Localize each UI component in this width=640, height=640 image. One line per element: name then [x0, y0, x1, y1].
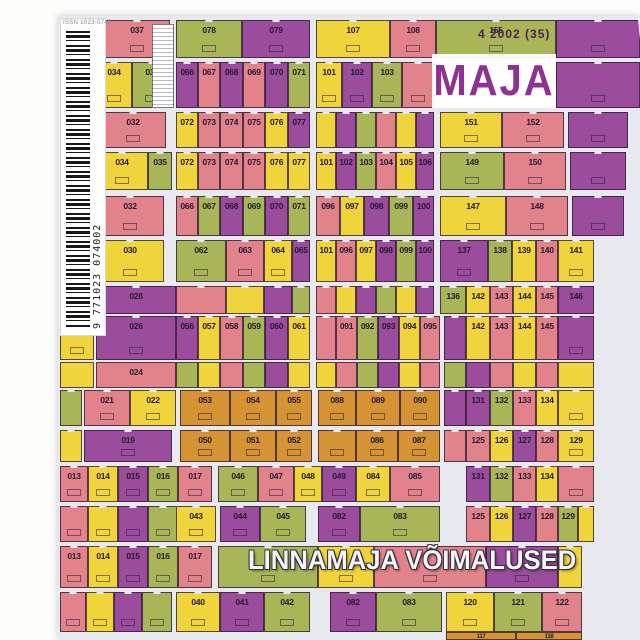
plan-cell: 118 [516, 632, 582, 640]
unit-number: 053 [198, 396, 211, 425]
plan-cell [336, 286, 356, 314]
unit-number: 085 [408, 472, 421, 501]
plan-cell: 103 [356, 152, 376, 190]
plan-cell: 076 [265, 152, 288, 190]
unit-number: 120 [463, 598, 476, 631]
unit-number: 087 [412, 436, 425, 461]
unit-number: 067 [202, 68, 215, 107]
plan-cell: 140 [536, 240, 558, 282]
plan-cell: 013 [60, 466, 88, 502]
magazine-cover: 0370780791071081550340350660670680690700… [0, 0, 640, 640]
plan-cell [220, 362, 243, 388]
unit-number: 152 [526, 118, 539, 147]
plan-cell: 098 [376, 240, 396, 282]
plan-cell: 062 [176, 240, 226, 282]
unit-number: 149 [465, 158, 478, 189]
plan-cell: 090 [400, 390, 440, 426]
plan-cell [396, 112, 416, 148]
unit-number: 134 [540, 396, 553, 425]
plan-cell: 082 [330, 592, 376, 632]
issn-label: ISSN 1023-0740 [63, 20, 112, 26]
stairwell-plan [152, 24, 174, 108]
plan-cell [142, 592, 172, 632]
plan-cell [416, 112, 434, 148]
plan-cell [572, 196, 624, 236]
unit-number: 014 [96, 552, 109, 587]
plan-cell [176, 362, 198, 388]
plan-cell: 102 [342, 62, 372, 108]
plan-cell: 096 [316, 196, 340, 236]
plan-cell: 132 [490, 390, 513, 426]
plan-cell: 073 [198, 112, 220, 148]
plan-cell [578, 506, 594, 542]
unit-number: 129 [561, 512, 574, 541]
unit-number: 019 [121, 436, 134, 461]
plan-cell: 083 [360, 506, 440, 542]
plan-cell: 088 [318, 390, 356, 426]
unit-number: 016 [156, 472, 169, 501]
plan-cell: 134 [536, 466, 558, 502]
unit-number: 048 [301, 472, 314, 501]
plan-cell: 139 [512, 240, 536, 282]
unit-number: 126 [495, 436, 508, 461]
unit-number: 106 [418, 158, 431, 189]
unit-number: 142 [471, 322, 484, 359]
plan-cell: 077 [288, 152, 310, 190]
plan-cell: 013 [60, 546, 88, 588]
unit-number: 092 [361, 322, 374, 359]
plan-cell: 102 [336, 152, 356, 190]
plan-cell [148, 506, 178, 542]
plan-cell: 017 [178, 546, 212, 588]
plan-cell: 041 [220, 592, 264, 632]
unit-number: 132 [495, 472, 508, 501]
unit-number: 131 [471, 396, 484, 425]
unit-number: 098 [379, 246, 392, 281]
plan-cell: 144 [513, 286, 536, 314]
plan-cell: 106 [416, 152, 434, 190]
unit-number: 148 [530, 202, 543, 235]
unit-number: 056 [180, 322, 193, 359]
unit-number: 016 [156, 552, 169, 587]
unit-number: 126 [495, 512, 508, 541]
plan-cell: 015 [118, 546, 148, 588]
unit-number: 127 [518, 512, 531, 541]
plan-cell: 108 [390, 20, 436, 58]
unit-number: 151 [464, 118, 477, 147]
plan-cell [402, 62, 434, 108]
plan-cell: 129 [558, 430, 594, 462]
unit-number: 024 [129, 368, 142, 387]
unit-number: 032 [126, 118, 139, 147]
unit-number: 072 [180, 158, 193, 189]
unit-number: 103 [359, 158, 372, 189]
unit-number: 144 [518, 322, 531, 359]
unit-number: 034 [115, 158, 128, 189]
plan-cell: 075 [243, 112, 265, 148]
plan-cell: 024 [96, 362, 176, 388]
unit-number: 101 [319, 158, 332, 189]
plan-cell [558, 362, 594, 388]
plan-cell: 074 [220, 112, 243, 148]
unit-number: 035 [153, 158, 166, 189]
unit-number: 073 [202, 118, 215, 147]
plan-cell: 040 [176, 592, 220, 632]
unit-number: 075 [247, 118, 260, 147]
unit-number: 100 [417, 202, 430, 235]
plan-cell: 107 [316, 20, 390, 58]
plan-cell: 043 [176, 506, 216, 542]
plan-cell: 097 [356, 240, 376, 282]
plan-cell [558, 316, 594, 360]
unit-number: 066 [180, 202, 193, 235]
plan-cell: 053 [180, 390, 230, 426]
plan-cell: 073 [198, 152, 220, 190]
plan-cell: 150 [504, 152, 566, 190]
plan-cell: 083 [376, 592, 442, 632]
plan-cell: 095 [420, 316, 440, 360]
unit-number: 142 [471, 292, 484, 313]
unit-number: 146 [569, 292, 582, 313]
barcode-digits: 9 771023 074002 [92, 29, 103, 329]
plan-cell: 045 [260, 506, 306, 542]
plan-cell [558, 466, 594, 502]
plan-cell: 069 [243, 62, 265, 108]
plan-cell: 069 [243, 196, 265, 236]
unit-number: 090 [413, 396, 426, 425]
plan-cell: 067 [198, 62, 220, 108]
plan-cell: 064 [264, 240, 292, 282]
unit-number: 028 [129, 292, 142, 313]
plan-cell [118, 506, 148, 542]
unit-number: 095 [423, 322, 436, 359]
plan-cell: 054 [230, 390, 276, 426]
plan-cell [316, 112, 336, 148]
plan-cell [444, 430, 466, 462]
unit-number: 140 [540, 246, 553, 281]
unit-number: 075 [247, 158, 260, 189]
plan-cell: 060 [265, 316, 288, 360]
plan-cell: 136 [440, 286, 466, 314]
unit-number: 017 [188, 552, 201, 587]
unit-number: 091 [340, 322, 353, 359]
unit-number: 102 [350, 68, 363, 107]
plan-cell: 068 [220, 62, 243, 108]
plan-cell [444, 316, 466, 360]
unit-number: 051 [246, 436, 259, 461]
unit-number: 041 [235, 598, 248, 631]
plan-cell [399, 362, 420, 388]
plan-cell: 019 [84, 430, 172, 462]
unit-number: 043 [189, 512, 202, 541]
unit-number: 096 [339, 246, 352, 281]
barcode-icon [66, 31, 90, 327]
plan-cell: 061 [288, 316, 310, 360]
plan-cell: 085 [390, 466, 440, 502]
unit-number: 082 [346, 598, 359, 631]
plan-cell: 131 [466, 390, 490, 426]
plan-cell: 016 [148, 546, 178, 588]
plan-cell: 074 [220, 152, 243, 190]
plan-cell [336, 112, 356, 148]
unit-number: 122 [555, 598, 568, 631]
unit-number: 026 [129, 322, 142, 359]
plan-cell: 067 [198, 196, 220, 236]
plan-cell: 086 [356, 430, 398, 462]
unit-number: 046 [231, 472, 244, 501]
plan-cell: 050 [180, 430, 230, 462]
plan-cell [88, 506, 118, 542]
plan-cell [376, 112, 396, 148]
plan-cell [416, 286, 434, 314]
plan-cell: 032 [100, 112, 166, 148]
plan-cell: 030 [96, 240, 164, 282]
plan-cell: 101 [316, 62, 342, 108]
unit-number: 084 [366, 472, 379, 501]
plan-cell: 103 [372, 62, 402, 108]
plan-cell: 032 [96, 196, 164, 236]
plan-cell [356, 112, 376, 148]
unit-number: 131 [471, 472, 484, 501]
unit-number: 128 [540, 512, 553, 541]
unit-number: 034 [107, 68, 120, 107]
unit-number: 096 [321, 202, 334, 235]
plan-cell: 145 [536, 286, 558, 314]
unit-number: 040 [191, 598, 204, 631]
unit-number: 068 [225, 202, 238, 235]
plan-cell: 120 [446, 592, 494, 632]
plan-cell: 093 [378, 316, 399, 360]
plan-cell [570, 152, 626, 190]
unit-number: 021 [100, 396, 113, 425]
plan-cell [264, 286, 292, 314]
plan-cell: 028 [96, 286, 176, 314]
unit-number: 079 [269, 26, 282, 57]
plan-cell [556, 62, 640, 108]
unit-number: 083 [393, 512, 406, 541]
plan-cell: 046 [218, 466, 258, 502]
unit-number: 099 [394, 202, 407, 235]
unit-number: 058 [225, 322, 238, 359]
plan-cell [86, 592, 114, 632]
unit-number: 049 [332, 472, 345, 501]
unit-number: 072 [180, 118, 193, 147]
plan-cell: 063 [226, 240, 264, 282]
unit-number: 022 [146, 396, 159, 425]
plan-cell: 014 [88, 466, 118, 502]
unit-number: 017 [188, 472, 201, 501]
plan-cell [568, 112, 628, 148]
plan-cell: 015 [118, 466, 148, 502]
plan-cell [357, 362, 378, 388]
unit-number: 145 [540, 322, 553, 359]
plan-cell [288, 362, 310, 388]
unit-number: 117 [477, 634, 486, 639]
unit-number: 129 [569, 436, 582, 461]
plan-cell: 089 [356, 390, 400, 426]
unit-number: 071 [292, 202, 305, 235]
unit-number: 141 [569, 246, 582, 281]
plan-cell: 042 [264, 592, 310, 632]
plan-cell [114, 592, 142, 632]
plan-cell [556, 20, 640, 58]
plan-cell: 151 [440, 112, 502, 148]
unit-number: 143 [495, 322, 508, 359]
unit-number: 100 [418, 246, 431, 281]
unit-number: 037 [130, 26, 143, 57]
plan-cell: 035 [148, 152, 172, 190]
plan-cell [60, 390, 82, 426]
unit-number: 013 [67, 472, 80, 501]
unit-number: 150 [528, 158, 541, 189]
plan-cell: 105 [396, 152, 416, 190]
plan-cell: 100 [416, 240, 434, 282]
unit-number: 101 [322, 68, 335, 107]
plan-cell [318, 430, 356, 462]
plan-cell: 091 [336, 316, 357, 360]
plan-cell: 143 [490, 316, 513, 360]
plan-cell: 092 [357, 316, 378, 360]
plan-cell: 142 [466, 316, 490, 360]
plan-cell: 133 [513, 466, 536, 502]
unit-number: 070 [270, 68, 283, 107]
unit-number: 121 [511, 598, 524, 631]
plan-cell: 125 [466, 506, 490, 542]
unit-number: 015 [126, 472, 139, 501]
plan-cell: 058 [220, 316, 243, 360]
unit-number: 032 [123, 202, 136, 235]
plan-cell [444, 362, 466, 388]
plan-cell [226, 286, 264, 314]
plan-cell: 128 [536, 506, 558, 542]
unit-number: 108 [406, 26, 419, 57]
unit-number: 078 [202, 26, 215, 57]
unit-number: 102 [339, 158, 352, 189]
plan-cell: 143 [490, 286, 513, 314]
plan-cell: 066 [176, 196, 198, 236]
unit-number: 097 [345, 202, 358, 235]
unit-number: 127 [518, 436, 531, 461]
plan-cell: 138 [488, 240, 512, 282]
plan-cell: 098 [364, 196, 389, 236]
unit-number: 071 [292, 68, 305, 107]
unit-number: 104 [379, 158, 392, 189]
plan-cell [466, 362, 490, 388]
unit-number: 055 [287, 396, 300, 425]
plan-cell [558, 390, 594, 426]
plan-cell [60, 592, 86, 632]
plan-cell: 072 [176, 152, 198, 190]
plan-cell [378, 362, 399, 388]
plan-cell: 099 [396, 240, 416, 282]
unit-number: 059 [247, 322, 260, 359]
unit-number: 103 [380, 68, 393, 107]
plan-cell: 096 [336, 240, 356, 282]
plan-cell [536, 362, 558, 388]
plan-cell: 127 [513, 430, 536, 462]
unit-number: 076 [270, 158, 283, 189]
unit-number: 074 [225, 158, 238, 189]
unit-number: 099 [399, 246, 412, 281]
plan-cell [198, 362, 220, 388]
unit-number: 137 [457, 246, 470, 281]
unit-number: 042 [280, 598, 293, 631]
unit-number: 062 [194, 246, 207, 281]
plan-cell: 149 [440, 152, 504, 190]
plan-cell: 014 [88, 546, 118, 588]
plan-cell: 057 [198, 316, 220, 360]
unit-number: 061 [292, 322, 305, 359]
barcode-block: ISSN 1023-0740 9 771023 074002 [60, 18, 106, 336]
plan-cell: 070 [265, 196, 288, 236]
unit-number: 089 [371, 396, 384, 425]
unit-number: 067 [202, 202, 215, 235]
plan-cell: 126 [490, 506, 513, 542]
unit-number: 063 [238, 246, 251, 281]
unit-number: 147 [466, 202, 479, 235]
plan-cell: 146 [558, 286, 594, 314]
plan-cell: 048 [294, 466, 322, 502]
plan-cell: 051 [230, 430, 276, 462]
unit-number: 145 [540, 292, 553, 313]
unit-number: 088 [330, 396, 343, 425]
plan-cell: 121 [494, 592, 542, 632]
plan-cell: 147 [440, 196, 506, 236]
unit-number: 047 [269, 472, 282, 501]
unit-number: 098 [370, 202, 383, 235]
plan-cell: 070 [265, 62, 288, 108]
plan-cell: 094 [399, 316, 420, 360]
unit-number: 133 [518, 396, 531, 425]
unit-number: 082 [332, 512, 345, 541]
plan-cell [420, 362, 440, 388]
plan-cell: 071 [288, 196, 310, 236]
unit-number: 097 [359, 246, 372, 281]
unit-number: 050 [198, 436, 211, 461]
unit-number: 069 [247, 68, 260, 107]
unit-number: 074 [225, 118, 238, 147]
plan-cell [356, 286, 376, 314]
unit-number: 057 [202, 322, 215, 359]
plan-cell [513, 362, 536, 388]
unit-number: 065 [294, 246, 307, 281]
plan-cell: 097 [340, 196, 364, 236]
plan-cell: 075 [243, 152, 265, 190]
plan-cell: 129 [558, 506, 578, 542]
unit-number: 125 [471, 512, 484, 541]
plan-cell: 065 [292, 240, 310, 282]
plan-cell: 076 [265, 112, 288, 148]
plan-cell [316, 362, 336, 388]
unit-number: 093 [382, 322, 395, 359]
plan-cell [444, 390, 466, 426]
unit-number: 105 [399, 158, 412, 189]
plan-cell: 142 [466, 286, 490, 314]
plan-cell: 084 [356, 466, 390, 502]
plan-cell [243, 362, 265, 388]
unit-number: 030 [123, 246, 136, 281]
unit-number: 013 [67, 552, 80, 587]
plan-cell [316, 316, 336, 360]
plan-cell: 099 [389, 196, 413, 236]
unit-number: 128 [540, 436, 553, 461]
unit-number: 077 [292, 118, 305, 147]
plan-cell: 131 [466, 466, 490, 502]
plan-cell [396, 286, 416, 314]
unit-number: 134 [540, 472, 553, 501]
plan-cell: 016 [148, 466, 178, 502]
plan-cell: 026 [96, 316, 176, 360]
